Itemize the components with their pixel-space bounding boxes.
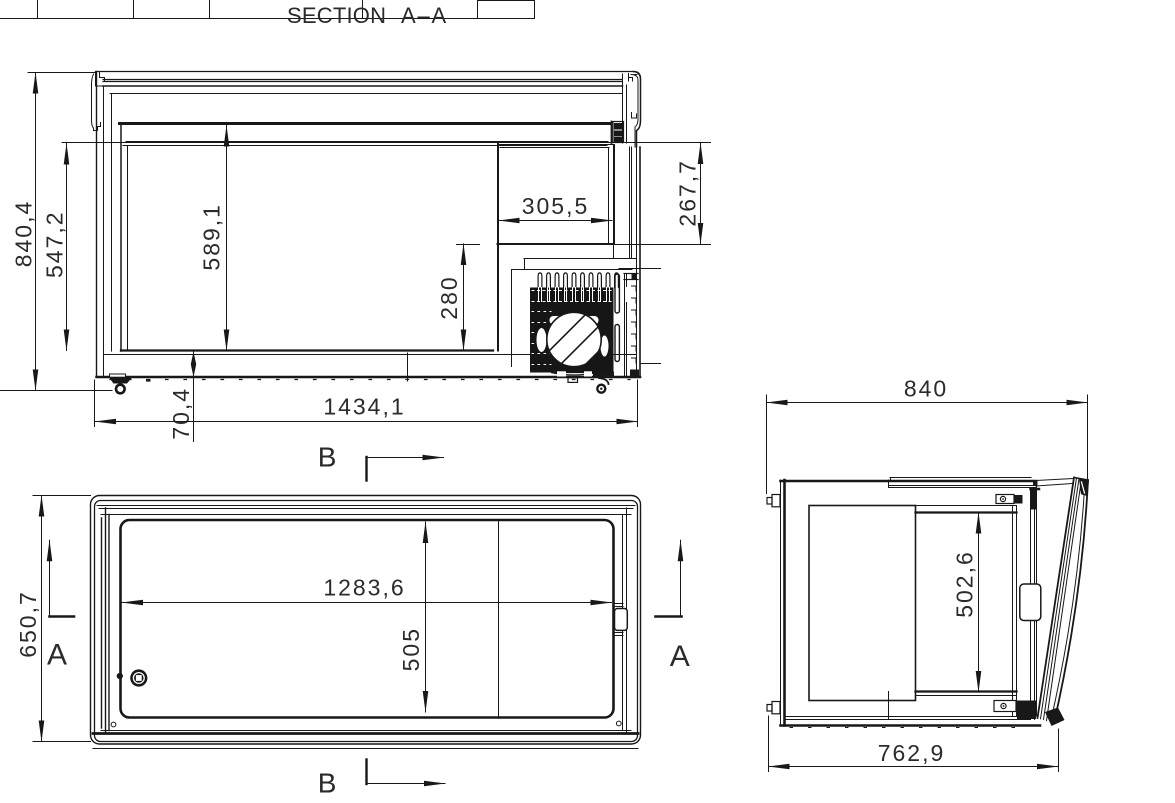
- svg-text:650,7: 650,7: [15, 590, 41, 658]
- svg-text:547,2: 547,2: [42, 210, 68, 278]
- svg-text:840: 840: [904, 376, 948, 402]
- svg-text:B: B: [318, 441, 337, 472]
- svg-text:B: B: [318, 768, 337, 799]
- svg-text:1283,6: 1283,6: [323, 575, 405, 601]
- svg-text:762,9: 762,9: [878, 740, 946, 766]
- svg-text:840,4: 840,4: [11, 200, 37, 268]
- svg-text:505: 505: [398, 627, 424, 671]
- svg-text:A: A: [670, 640, 690, 673]
- svg-text:502,6: 502,6: [952, 550, 978, 618]
- svg-text:A: A: [47, 639, 67, 672]
- svg-text:305,5: 305,5: [522, 193, 590, 219]
- svg-text:1434,1: 1434,1: [323, 394, 405, 420]
- svg-text:267,7: 267,7: [675, 159, 701, 227]
- svg-text:589,1: 589,1: [199, 203, 225, 271]
- svg-text:280: 280: [436, 275, 462, 319]
- svg-text:SECTIONA–A: SECTIONA–A: [287, 3, 448, 28]
- svg-text:70,4: 70,4: [168, 387, 194, 440]
